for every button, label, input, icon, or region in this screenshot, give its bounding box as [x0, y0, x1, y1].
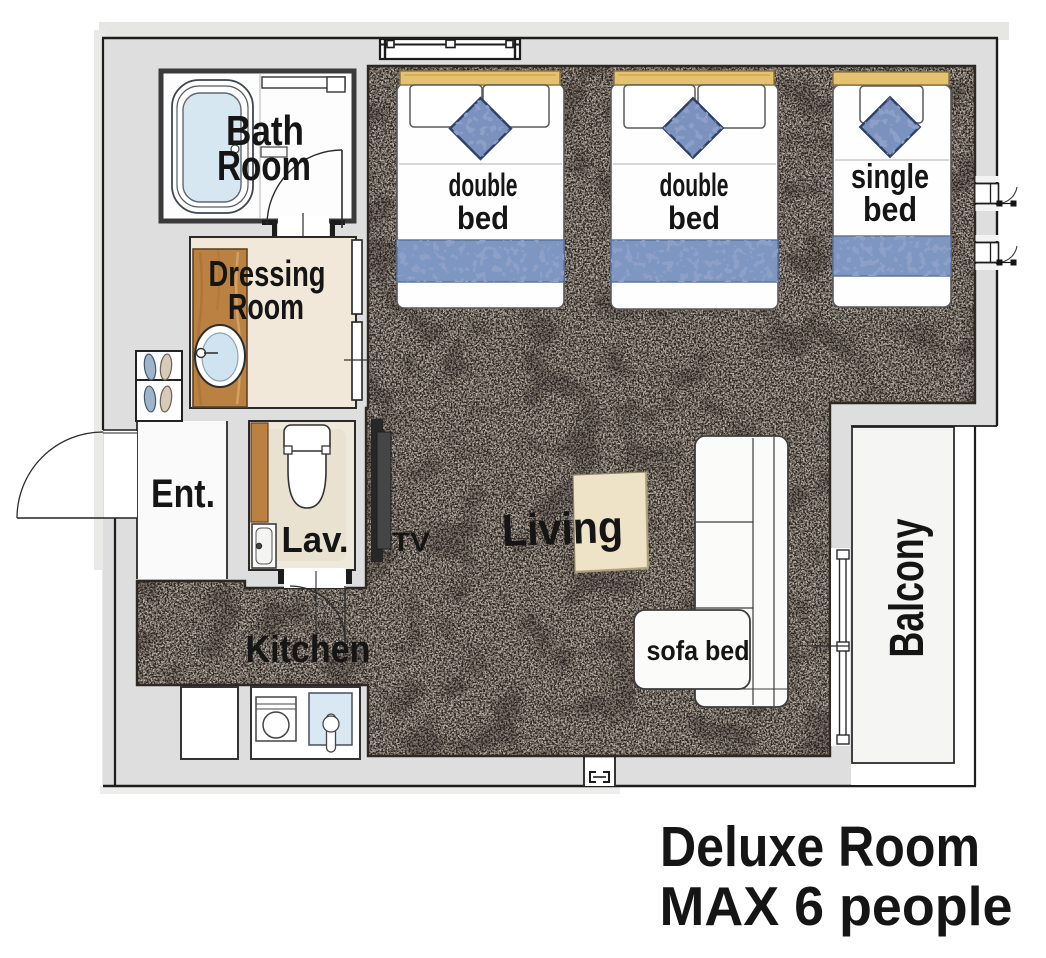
svg-text:Living: Living: [501, 501, 624, 556]
svg-text:bed: bed: [457, 200, 509, 236]
svg-text:double: double: [449, 167, 518, 203]
svg-text:Room: Room: [217, 142, 311, 189]
svg-text:Kitchen: Kitchen: [246, 629, 371, 671]
svg-text:double: double: [660, 167, 729, 203]
svg-text:MAX 6 people: MAX 6 people: [660, 875, 1013, 937]
svg-text:Balcony: Balcony: [881, 518, 934, 657]
svg-text:Deluxe Room: Deluxe Room: [660, 815, 980, 879]
svg-text:Ent.: Ent.: [151, 472, 215, 516]
svg-text:bed: bed: [668, 200, 720, 236]
svg-text:Room: Room: [228, 286, 304, 327]
svg-text:Lav.: Lav.: [282, 519, 349, 560]
svg-text:sofa bed: sofa bed: [647, 635, 750, 666]
svg-text:TV: TV: [392, 527, 430, 557]
svg-text:bed: bed: [863, 191, 917, 229]
